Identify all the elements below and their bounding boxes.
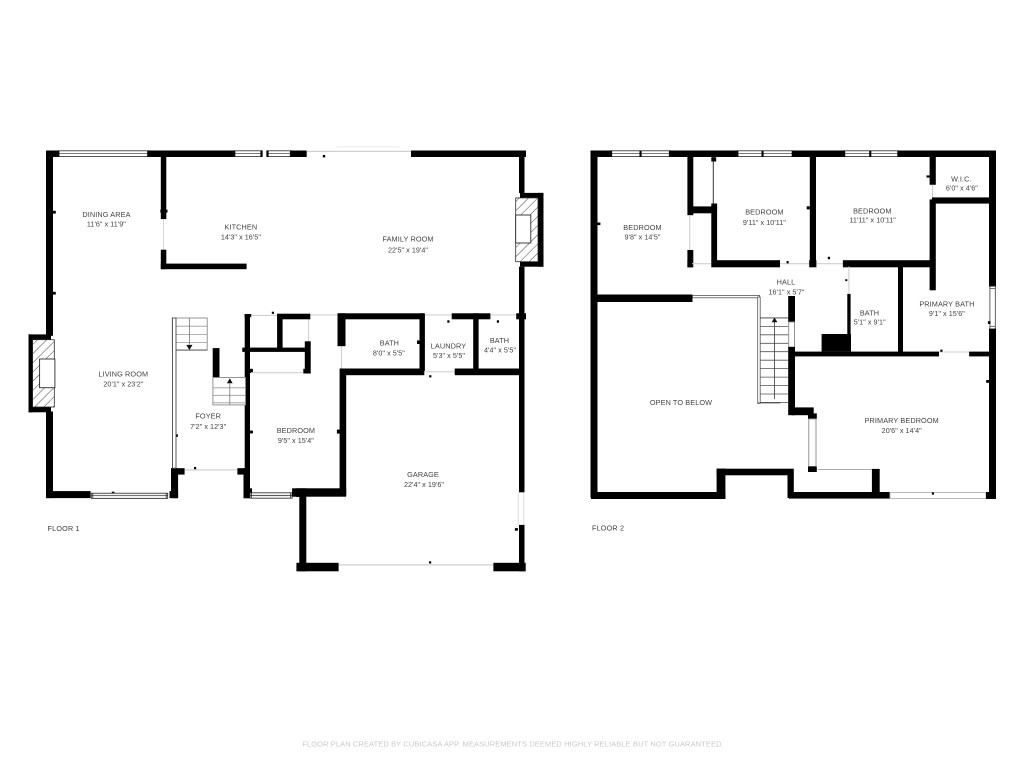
svg-text:22'5" x 19'4": 22'5" x 19'4" [388,246,428,255]
svg-text:FLOOR 1: FLOOR 1 [48,524,80,533]
svg-text:FLOOR 2: FLOOR 2 [592,524,624,533]
svg-text:W.I.C.: W.I.C. [951,175,971,184]
svg-text:14'3" x 16'5": 14'3" x 16'5" [221,233,261,242]
svg-text:4'4" x 5'5": 4'4" x 5'5" [484,346,516,355]
svg-text:7'2" x 12'3": 7'2" x 12'3" [190,422,226,431]
svg-text:9'11" x 10'11": 9'11" x 10'11" [743,218,786,227]
svg-text:11'11" x 10'11": 11'11" x 10'11" [849,216,896,225]
svg-text:KITCHEN: KITCHEN [225,222,258,231]
svg-text:HALL: HALL [777,278,796,287]
svg-text:BATH: BATH [860,309,879,318]
svg-text:5'3" x 5'5": 5'3" x 5'5" [433,351,465,360]
svg-text:BEDROOM: BEDROOM [623,223,661,232]
svg-text:LAUNDRY: LAUNDRY [431,341,466,350]
svg-text:GARAGE: GARAGE [407,470,439,479]
svg-text:LIVING ROOM: LIVING ROOM [98,369,148,378]
svg-text:9'1" x 15'6": 9'1" x 15'6" [929,309,965,318]
svg-text:11'6" x 11'9": 11'6" x 11'9" [87,219,126,228]
svg-text:9'5" x 15'4": 9'5" x 15'4" [278,436,314,445]
svg-text:8'0" x 5'5": 8'0" x 5'5" [373,348,405,357]
svg-text:BEDROOM: BEDROOM [853,206,891,215]
svg-text:16'1" x 5'7": 16'1" x 5'7" [768,288,804,297]
svg-text:20'6" x 14'4": 20'6" x 14'4" [882,426,922,435]
svg-text:OPEN TO BELOW: OPEN TO BELOW [650,398,712,407]
svg-text:BATH: BATH [490,336,509,345]
svg-text:BATH: BATH [380,339,399,348]
svg-text:PRIMARY BEDROOM: PRIMARY BEDROOM [865,416,939,425]
svg-text:5'1" x 9'1": 5'1" x 9'1" [854,317,886,326]
svg-text:20'1" x 23'2": 20'1" x 23'2" [103,379,143,388]
svg-text:6'0" x 4'6": 6'0" x 4'6" [946,183,978,192]
svg-text:FLOOR PLAN CREATED BY CUBICASA: FLOOR PLAN CREATED BY CUBICASA APP. MEAS… [302,739,724,748]
svg-text:FOYER: FOYER [195,412,221,421]
svg-text:22'4" x 19'6": 22'4" x 19'6" [404,480,444,489]
svg-text:FAMILY ROOM: FAMILY ROOM [382,234,433,243]
svg-text:BEDROOM: BEDROOM [745,208,783,217]
svg-text:9'8" x 14'5": 9'8" x 14'5" [624,233,660,242]
svg-text:PRIMARY BATH: PRIMARY BATH [919,299,974,308]
svg-text:BEDROOM: BEDROOM [277,426,315,435]
svg-text:DINING AREA: DINING AREA [82,210,130,219]
